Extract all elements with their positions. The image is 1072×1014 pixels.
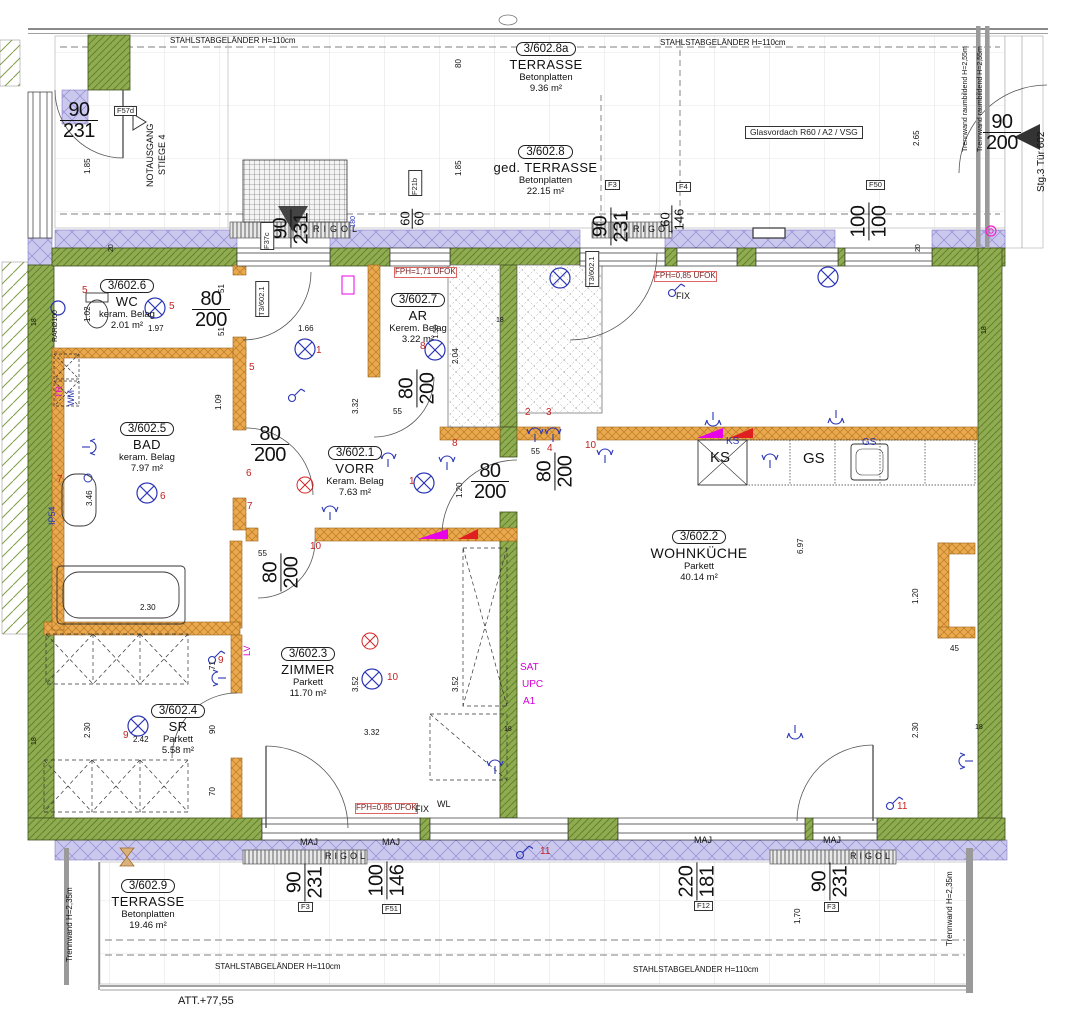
- wl-label: WL: [437, 800, 451, 810]
- dim-label: 1.66: [298, 325, 314, 334]
- room-name: TERRASSE: [98, 894, 198, 909]
- tag-f51: F51: [382, 904, 401, 914]
- dim-w: 90: [590, 208, 610, 246]
- tr-label: TR: [55, 378, 65, 398]
- dim-w: 220: [676, 863, 696, 901]
- tag-f37c: F37c: [260, 222, 274, 250]
- room-id: 3/602.4: [151, 704, 205, 718]
- dim-window-f50: 100100: [848, 203, 889, 241]
- circuit-number: 11: [540, 846, 550, 857]
- room-name: BAD: [100, 437, 194, 452]
- room-name: WC: [85, 294, 169, 309]
- dim-w: 60: [399, 208, 412, 228]
- dim-h: 231: [290, 210, 311, 248]
- dim-label: 3.46: [86, 480, 95, 506]
- maj-label-1: MAJ: [300, 838, 318, 848]
- railing-label-bottom-right: STAHLSTABGELÄNDER H=110cm: [633, 966, 759, 975]
- room-area: 11.70 m²: [261, 688, 355, 699]
- circuit-number: 4: [547, 443, 553, 454]
- dim-label: 1.20: [456, 472, 465, 498]
- room-wc: 3/602.6 WC keram. Belag 2.01 m²: [85, 276, 169, 331]
- ks-small-label: KS: [726, 436, 739, 447]
- room-area: 5.58 m²: [136, 745, 220, 756]
- dim-wk-door-rot: 80200: [534, 453, 575, 491]
- room-terrasse-8a: 3/602.8a TERRASSE Betonplatten 9.36 m²: [485, 39, 607, 94]
- circuit-number: 10: [585, 440, 596, 451]
- railing-label-top-left: STAHLSTABGELÄNDER H=110cm: [170, 37, 296, 46]
- dim-label: 3.32: [352, 388, 361, 414]
- room-id: 3/602.7: [391, 293, 445, 307]
- notausgang-line2: STIEGE 4: [158, 105, 168, 175]
- room-area: 7.63 m²: [308, 487, 402, 498]
- trennwand-255-b: Trennwand raumbildend H=2,55m: [977, 22, 985, 152]
- gs-label: GS: [803, 451, 825, 468]
- circuit-number: 7: [57, 474, 63, 485]
- dim-w: 90: [284, 864, 304, 902]
- maj-label-3: MAJ: [694, 836, 712, 846]
- dim-label: 18: [975, 724, 983, 732]
- dim-label: 1,70: [794, 900, 803, 924]
- maj-label-4: MAJ: [823, 836, 841, 846]
- gs-small-label: GS: [862, 437, 876, 448]
- ks-label: KS: [710, 450, 730, 467]
- room-name: AR: [376, 308, 460, 323]
- dim-w: 80: [534, 453, 554, 491]
- dim-label: 1.02: [84, 296, 93, 322]
- room-name: VORR: [308, 461, 402, 476]
- a1-label: A1: [523, 696, 535, 707]
- wm-label: WM: [67, 384, 77, 406]
- dim-label: 55: [393, 408, 402, 417]
- dim-terrace-door-f37c: 90231: [270, 210, 311, 248]
- dim-h: 231: [829, 863, 850, 901]
- dim-w: 90: [809, 863, 829, 901]
- dim-label: 3.52: [352, 666, 361, 692]
- dim-h: 200: [416, 370, 437, 408]
- dim-w: 90: [983, 112, 1021, 132]
- dim-w: 80: [260, 554, 280, 592]
- dim-bottom-window-f12: 220181: [676, 863, 717, 901]
- room-name: TERRASSE: [485, 57, 607, 72]
- kitchen-sink: [851, 444, 888, 480]
- dim-terrace-door-f3: 90231: [590, 208, 631, 246]
- circuit-number: 6: [246, 468, 252, 479]
- kitchen-units: [698, 440, 975, 485]
- stg3-tuer-602: Stg.3 Tür 602: [1036, 92, 1047, 192]
- room-area: 7.97 m²: [100, 463, 194, 474]
- room-terrasse-9: 3/602.9 TERRASSE Betonplatten 19.46 m²: [98, 876, 198, 931]
- bathtub: [57, 566, 185, 624]
- dim-label: 70: [209, 780, 218, 796]
- railing-label-bottom-left: STAHLSTABGELÄNDER H=110cm: [215, 963, 341, 972]
- dim-label: 1.58: [433, 325, 441, 339]
- circuit-number: 9: [123, 730, 129, 741]
- rigol-label-3: RIGOL: [325, 852, 368, 862]
- tag-f50: F50: [866, 180, 885, 190]
- fph-085-top-label: FPH=0,85 ÜFOK: [654, 271, 717, 282]
- circuit-number: 9: [218, 655, 224, 666]
- dim-label: 90: [209, 718, 218, 734]
- room-zimmer: 3/602.3 ZIMMER Parkett 11.70 m²: [261, 644, 355, 699]
- room-floor: keram. Belag: [85, 309, 169, 320]
- room-name: ged. TERRASSE: [473, 160, 618, 175]
- zimmer-wardrobes: [430, 548, 507, 780]
- dim-label: 18: [496, 317, 504, 325]
- railing-label-top-right: STAHLSTABGELÄNDER H=110cm: [660, 39, 786, 48]
- fph-085-bottom-label: FPH=0,85 ÜFOK: [355, 803, 418, 814]
- dim-h: 60: [412, 208, 426, 228]
- dim-exit-door: 90231: [60, 100, 98, 141]
- room-floor: Betonplatten: [473, 175, 618, 186]
- room-floor: Parkett: [636, 561, 762, 572]
- tag-f3-bottom-left: F3: [298, 902, 313, 912]
- dim-label: 1.09: [215, 384, 224, 410]
- dim-label: 55: [531, 448, 540, 457]
- rigol-label-4: RIGOL: [850, 852, 893, 862]
- dim-label: 18: [981, 320, 989, 334]
- circuit-number: 10: [387, 672, 398, 683]
- fph-171-label: FPH=1,71 ÜFOK: [394, 267, 457, 278]
- room-id: 3/602.3: [281, 647, 335, 661]
- outside-hatch: [0, 40, 28, 634]
- room-area: 9.36 m²: [485, 83, 607, 94]
- dim-label: 2.30: [84, 712, 93, 738]
- dim-label: 18: [31, 731, 39, 745]
- lv-label: LV: [243, 634, 253, 656]
- dim-h: 231: [60, 120, 98, 141]
- circuit-number: 5: [249, 362, 255, 373]
- dim-bottom-door-left: 90231: [284, 864, 325, 902]
- dim-label: 2.30: [140, 604, 156, 613]
- dim-h: 231: [304, 864, 325, 902]
- dim-h: 181: [696, 863, 717, 901]
- room-area: 40.14 m²: [636, 572, 762, 583]
- dim-stair-door: 90200: [983, 112, 1021, 153]
- dim-label: 18: [504, 726, 512, 734]
- dim-h: 231: [610, 208, 631, 246]
- dim-label: 2.30: [912, 712, 921, 738]
- circuit-number: 7: [247, 501, 253, 512]
- dim-label: 2.42: [133, 736, 149, 745]
- dim-label: 1.85: [455, 150, 464, 176]
- circuit-number: 1: [316, 345, 322, 356]
- dim-window-60-60: 6060: [399, 208, 426, 228]
- room-id: 3/602.5: [120, 422, 174, 436]
- shafts: [448, 265, 602, 427]
- trennwand-255-a: Trennwand raumbildend H=2,55m: [962, 22, 970, 152]
- tag-f21b: F21b: [408, 170, 422, 196]
- dim-label: 1.20: [912, 578, 921, 604]
- dim-h: 200: [554, 453, 575, 491]
- room-id: 3/602.8a: [516, 42, 577, 56]
- dim-label: 18: [31, 312, 39, 326]
- room-wohnkueche: 3/602.2 WOHNKÜCHE Parkett 40.14 m²: [636, 527, 762, 583]
- upc-label: UPC: [522, 679, 543, 690]
- room-terrasse-ged: 3/602.8 ged. TERRASSE Betonplatten 22.15…: [473, 142, 618, 197]
- room-name: ZIMMER: [261, 662, 355, 677]
- dim-bottom-door-right: 90231: [809, 863, 850, 901]
- trennwand-235-right: Trennwand H=2,35m: [946, 856, 955, 946]
- room-ar: 3/602.7 AR Kerem. Belag 3.22 m²: [376, 290, 460, 345]
- dim-label: 2.04: [452, 338, 461, 364]
- dim-h: 200: [471, 481, 509, 502]
- floor-plan: STAHLSTABGELÄNDER H=110cm STAHLSTABGELÄN…: [0, 0, 1072, 1014]
- dim-w: 80: [396, 370, 416, 408]
- room-floor: keram. Belag: [100, 452, 194, 463]
- dim-w: 80: [471, 461, 509, 481]
- circuit-number: 10: [310, 541, 321, 552]
- dim-h: 100: [868, 203, 889, 241]
- dim-label: 80: [455, 50, 464, 68]
- dim-180: 180: [350, 216, 358, 228]
- rigol-label-2: RIGOL: [633, 225, 676, 235]
- att-level-label: ATT.+77,55: [178, 995, 234, 1007]
- room-id: 3/602.2: [672, 530, 726, 544]
- dim-h: 200: [983, 132, 1021, 153]
- circuit-number: 2: [525, 407, 531, 418]
- dim-label: 1.85: [84, 148, 93, 174]
- room-floor: Keram. Belag: [308, 476, 402, 487]
- maj-label-2: MAJ: [382, 838, 400, 848]
- room-id: 3/602.1: [328, 446, 382, 460]
- tag-f3-top: F3: [605, 180, 620, 190]
- dim-label: 20: [915, 238, 923, 252]
- dim-label: 20: [108, 238, 116, 252]
- dim-label: 2.65: [913, 118, 922, 146]
- dim-bad-door: 80200: [251, 424, 289, 465]
- dim-bottom-window-f51: 100146: [366, 862, 407, 900]
- fix-label-top: FIX: [676, 292, 690, 302]
- dim-label: 1.97: [148, 325, 164, 334]
- dim-w: 100: [848, 203, 868, 241]
- room-floor: Kerem. Belag: [376, 323, 460, 334]
- dim-label: 6.97: [797, 528, 806, 554]
- dim-w: 100: [366, 862, 386, 900]
- room-floor: Betonplatten: [485, 72, 607, 83]
- tag-t3602-entry: T3/602.1: [585, 251, 599, 287]
- trennwand-235-left: Trennwand H=2,35m: [66, 872, 75, 962]
- notausgang-line1: NOTAUSGANG: [146, 92, 156, 187]
- room-area: 19.46 m²: [98, 920, 198, 931]
- tag-f57d: F57d: [114, 106, 137, 116]
- circuit-number: 11: [897, 801, 907, 812]
- room-area: 3.22 m²: [376, 334, 460, 345]
- tag-f4: F4: [676, 182, 691, 192]
- dim-label: 55: [258, 550, 267, 559]
- dim-label: 3.52: [452, 666, 461, 692]
- dim-label: 45: [950, 645, 959, 654]
- dim-wk-door: 80200: [471, 461, 509, 502]
- dim-label: 51: [218, 277, 227, 293]
- circuit-number: 8: [452, 438, 458, 449]
- dim-h: 146: [386, 862, 407, 900]
- fix-label-bottom: FIX: [415, 805, 429, 815]
- room-vorr: 3/602.1 VORR Keram. Belag 7.63 m²: [308, 443, 402, 498]
- dim-w: 80: [251, 424, 289, 444]
- room-name: WOHNKÜCHE: [636, 545, 762, 561]
- room-floor: Parkett: [261, 677, 355, 688]
- room-id: 3/602.6: [100, 279, 154, 293]
- dim-w: 90: [60, 100, 98, 120]
- dim-h: 200: [280, 554, 301, 592]
- circuit-number: 8: [420, 341, 426, 352]
- rar-label: RARØ100: [52, 296, 60, 342]
- room-floor: Betonplatten: [98, 909, 198, 920]
- dim-h: 200: [251, 444, 289, 465]
- ip54-label: IP54: [48, 497, 58, 525]
- room-bad: 3/602.5 BAD keram. Belag 7.97 m²: [100, 419, 194, 474]
- sat-label: SAT: [520, 662, 539, 673]
- dim-zimmer-door: 80200: [260, 554, 301, 592]
- dim-label: 3.32: [364, 729, 380, 738]
- circuit-number: 3: [546, 407, 552, 418]
- circuit-number: 1: [409, 476, 415, 487]
- tag-f12: F12: [694, 901, 713, 911]
- room-area: 22.15 m²: [473, 186, 618, 197]
- tag-t3602-wc: T3/602.1: [255, 281, 269, 317]
- room-id: 3/602.8: [518, 145, 572, 159]
- circuit-number: 6: [160, 491, 166, 502]
- dim-label: 51: [218, 320, 227, 336]
- dim-ar-door: 80200: [396, 370, 437, 408]
- dim-label: 71: [209, 654, 218, 670]
- room-id: 3/602.9: [121, 879, 175, 893]
- glasvordach-label: Glasvordach R60 / A2 / VSG: [745, 126, 863, 139]
- circuit-number: 5: [169, 301, 175, 312]
- circuit-number: 5: [82, 285, 88, 296]
- tag-f3-bottom-right: F3: [824, 902, 839, 912]
